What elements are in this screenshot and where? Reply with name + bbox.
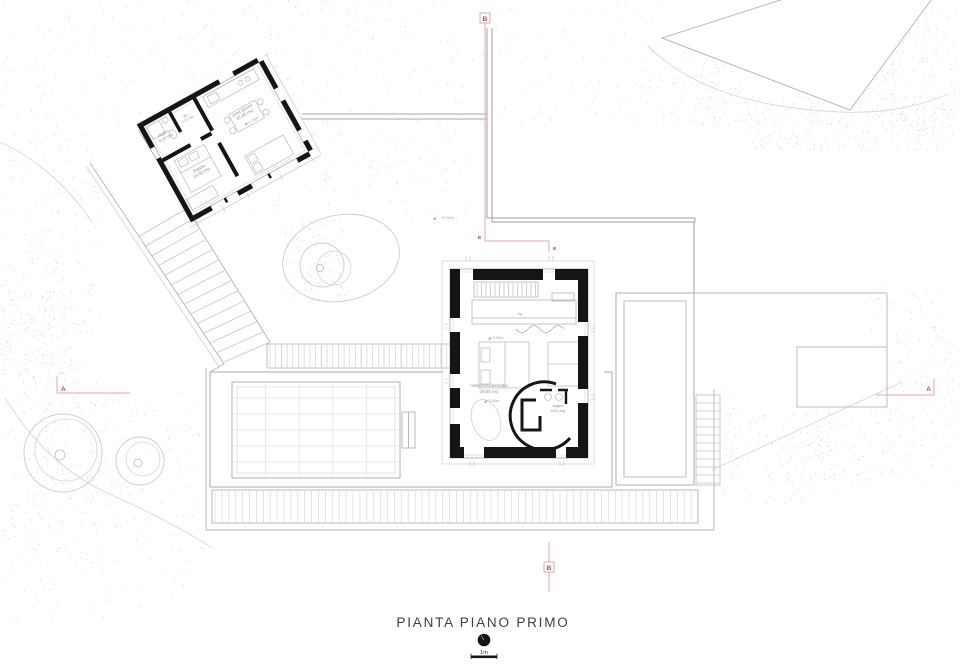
level-arrow-icon (433, 217, 436, 220)
guesthouse-glazing-outer (144, 62, 309, 215)
level-mark-matrimoniale: +2.00m (487, 399, 500, 403)
level-mark-upper: +2.00m (491, 336, 504, 340)
deck-walkway (212, 490, 698, 523)
section-letter-a-right: A (926, 386, 931, 393)
north-arrow-icon (478, 633, 491, 647)
section-letter-a-left: A (61, 386, 66, 393)
section-letter-b-jog-right: B (553, 246, 557, 251)
courtyard-level-mark: +2.00m (433, 216, 454, 220)
scale-label: 1m (480, 650, 488, 656)
east-platform (797, 347, 887, 407)
courtyard-tree (274, 204, 407, 313)
main-house: rip matrimoniale/studio 39.85 mq +2.00m … (442, 256, 595, 466)
courtyard-north-edge (302, 114, 487, 119)
section-letter-b-jog-left: B (478, 235, 482, 240)
section-letter-b-bottom: B (547, 565, 552, 572)
level-mark-courtyard: +2.00m (441, 216, 454, 220)
planter (616, 293, 694, 485)
room-label-rip: rip (518, 311, 523, 316)
neighbor-roof-outline (662, 0, 934, 110)
garden-tree-small (116, 437, 164, 485)
guesthouse: bagno 4.16 mq dis. 2.07 mq zona giorno 2… (134, 52, 326, 230)
pool (232, 382, 415, 478)
east-steps (696, 395, 720, 485)
floor-plan-drawing: bagno 4.16 mq dis. 2.07 mq zona giorno 2… (0, 0, 960, 666)
scale-bar: 1m (471, 650, 497, 659)
room-area-matrimoniale: 39.85 mq (480, 389, 499, 394)
drawing-title: PIANTA PIANO PRIMO (396, 615, 569, 630)
section-letter-b-top: B (483, 16, 488, 23)
room-area-bagno-main: 8.64 mq (551, 408, 565, 413)
garden-tree-large (24, 414, 102, 492)
pool-ladder (402, 412, 415, 448)
title-block: PIANTA PIANO PRIMO 1m (396, 615, 569, 659)
room-label-matrimoniale: matrimoniale/studio (470, 383, 508, 388)
retaining-wall-L (487, 28, 695, 293)
